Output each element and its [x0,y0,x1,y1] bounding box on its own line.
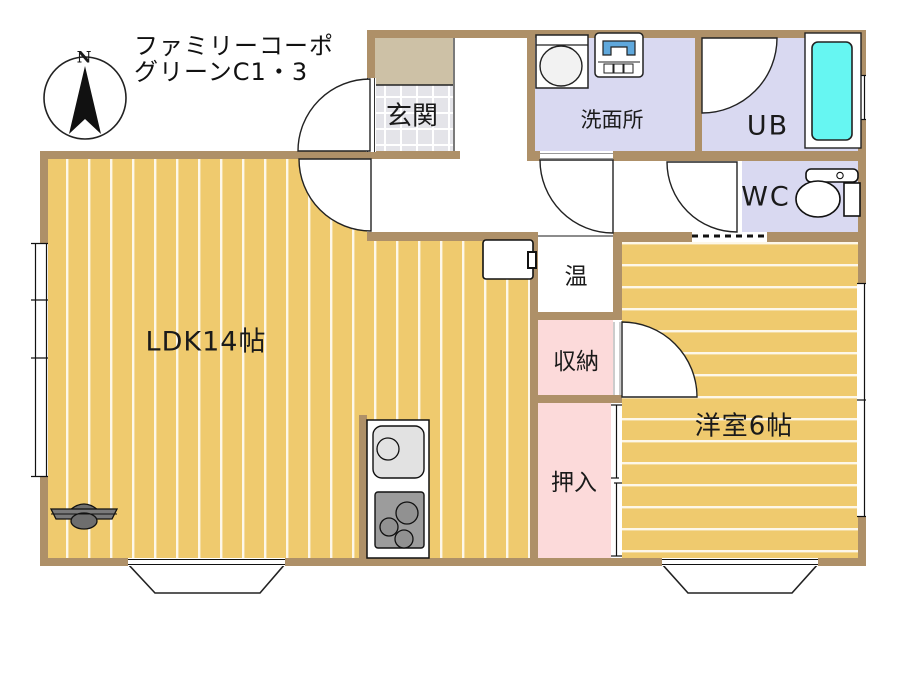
ldk-bottom-window [128,558,285,566]
room-label-onsui: 温 [565,257,588,291]
kitchen-sink-icon [373,426,424,478]
counter-box-icon [483,240,536,279]
yoshitsu-right-window [857,283,866,517]
floorplan-canvas: ファミリーコーポ グリーンC1・3 N 玄関 洗面所 UB WC 温 収納 押入… [0,0,909,673]
floorplan-drawing [0,0,909,673]
ldk-left-window [31,243,48,477]
yoshitsu-step-porch [662,564,818,593]
floor-layer [48,38,858,558]
senmenjo-door-swing [540,160,613,233]
room-label-ldk: LDK14帖 [146,320,267,359]
room-label-shuno: 収納 [553,342,599,376]
room-label-ub: UB [747,111,789,142]
stove-icon [375,492,424,548]
step-porches [128,564,818,593]
genkan-shoe-cabinet [375,38,453,85]
room-label-oshiire: 押入 [551,463,597,497]
sink-icon [536,35,588,88]
plan-title-line2: グリーンC1・3 [134,59,334,85]
room-label-wc: WC [741,182,791,213]
toilet-icon [796,169,860,217]
washing-machine-icon [595,33,643,77]
plan-title-line1: ファミリーコーポ [134,33,334,59]
compass-north-label: N [77,48,92,67]
ldk-step-porch [128,564,285,593]
room-label-senmenjo: 洗面所 [581,104,644,134]
entrance-door-swing [298,79,370,151]
yoshitsu-bottom-window [662,558,818,566]
plan-title: ファミリーコーポ グリーンC1・3 [134,33,334,85]
bathtub-icon [805,33,861,148]
wc-door-swing [667,162,737,232]
room-label-yoshitsu: 洋室6帖 [695,406,794,443]
kitchen-unit-icon [367,420,429,558]
compass [44,57,126,139]
room-label-genkan: 玄関 [386,96,438,133]
floor-yoshitsu [622,242,858,558]
floor-ldk [48,159,530,558]
